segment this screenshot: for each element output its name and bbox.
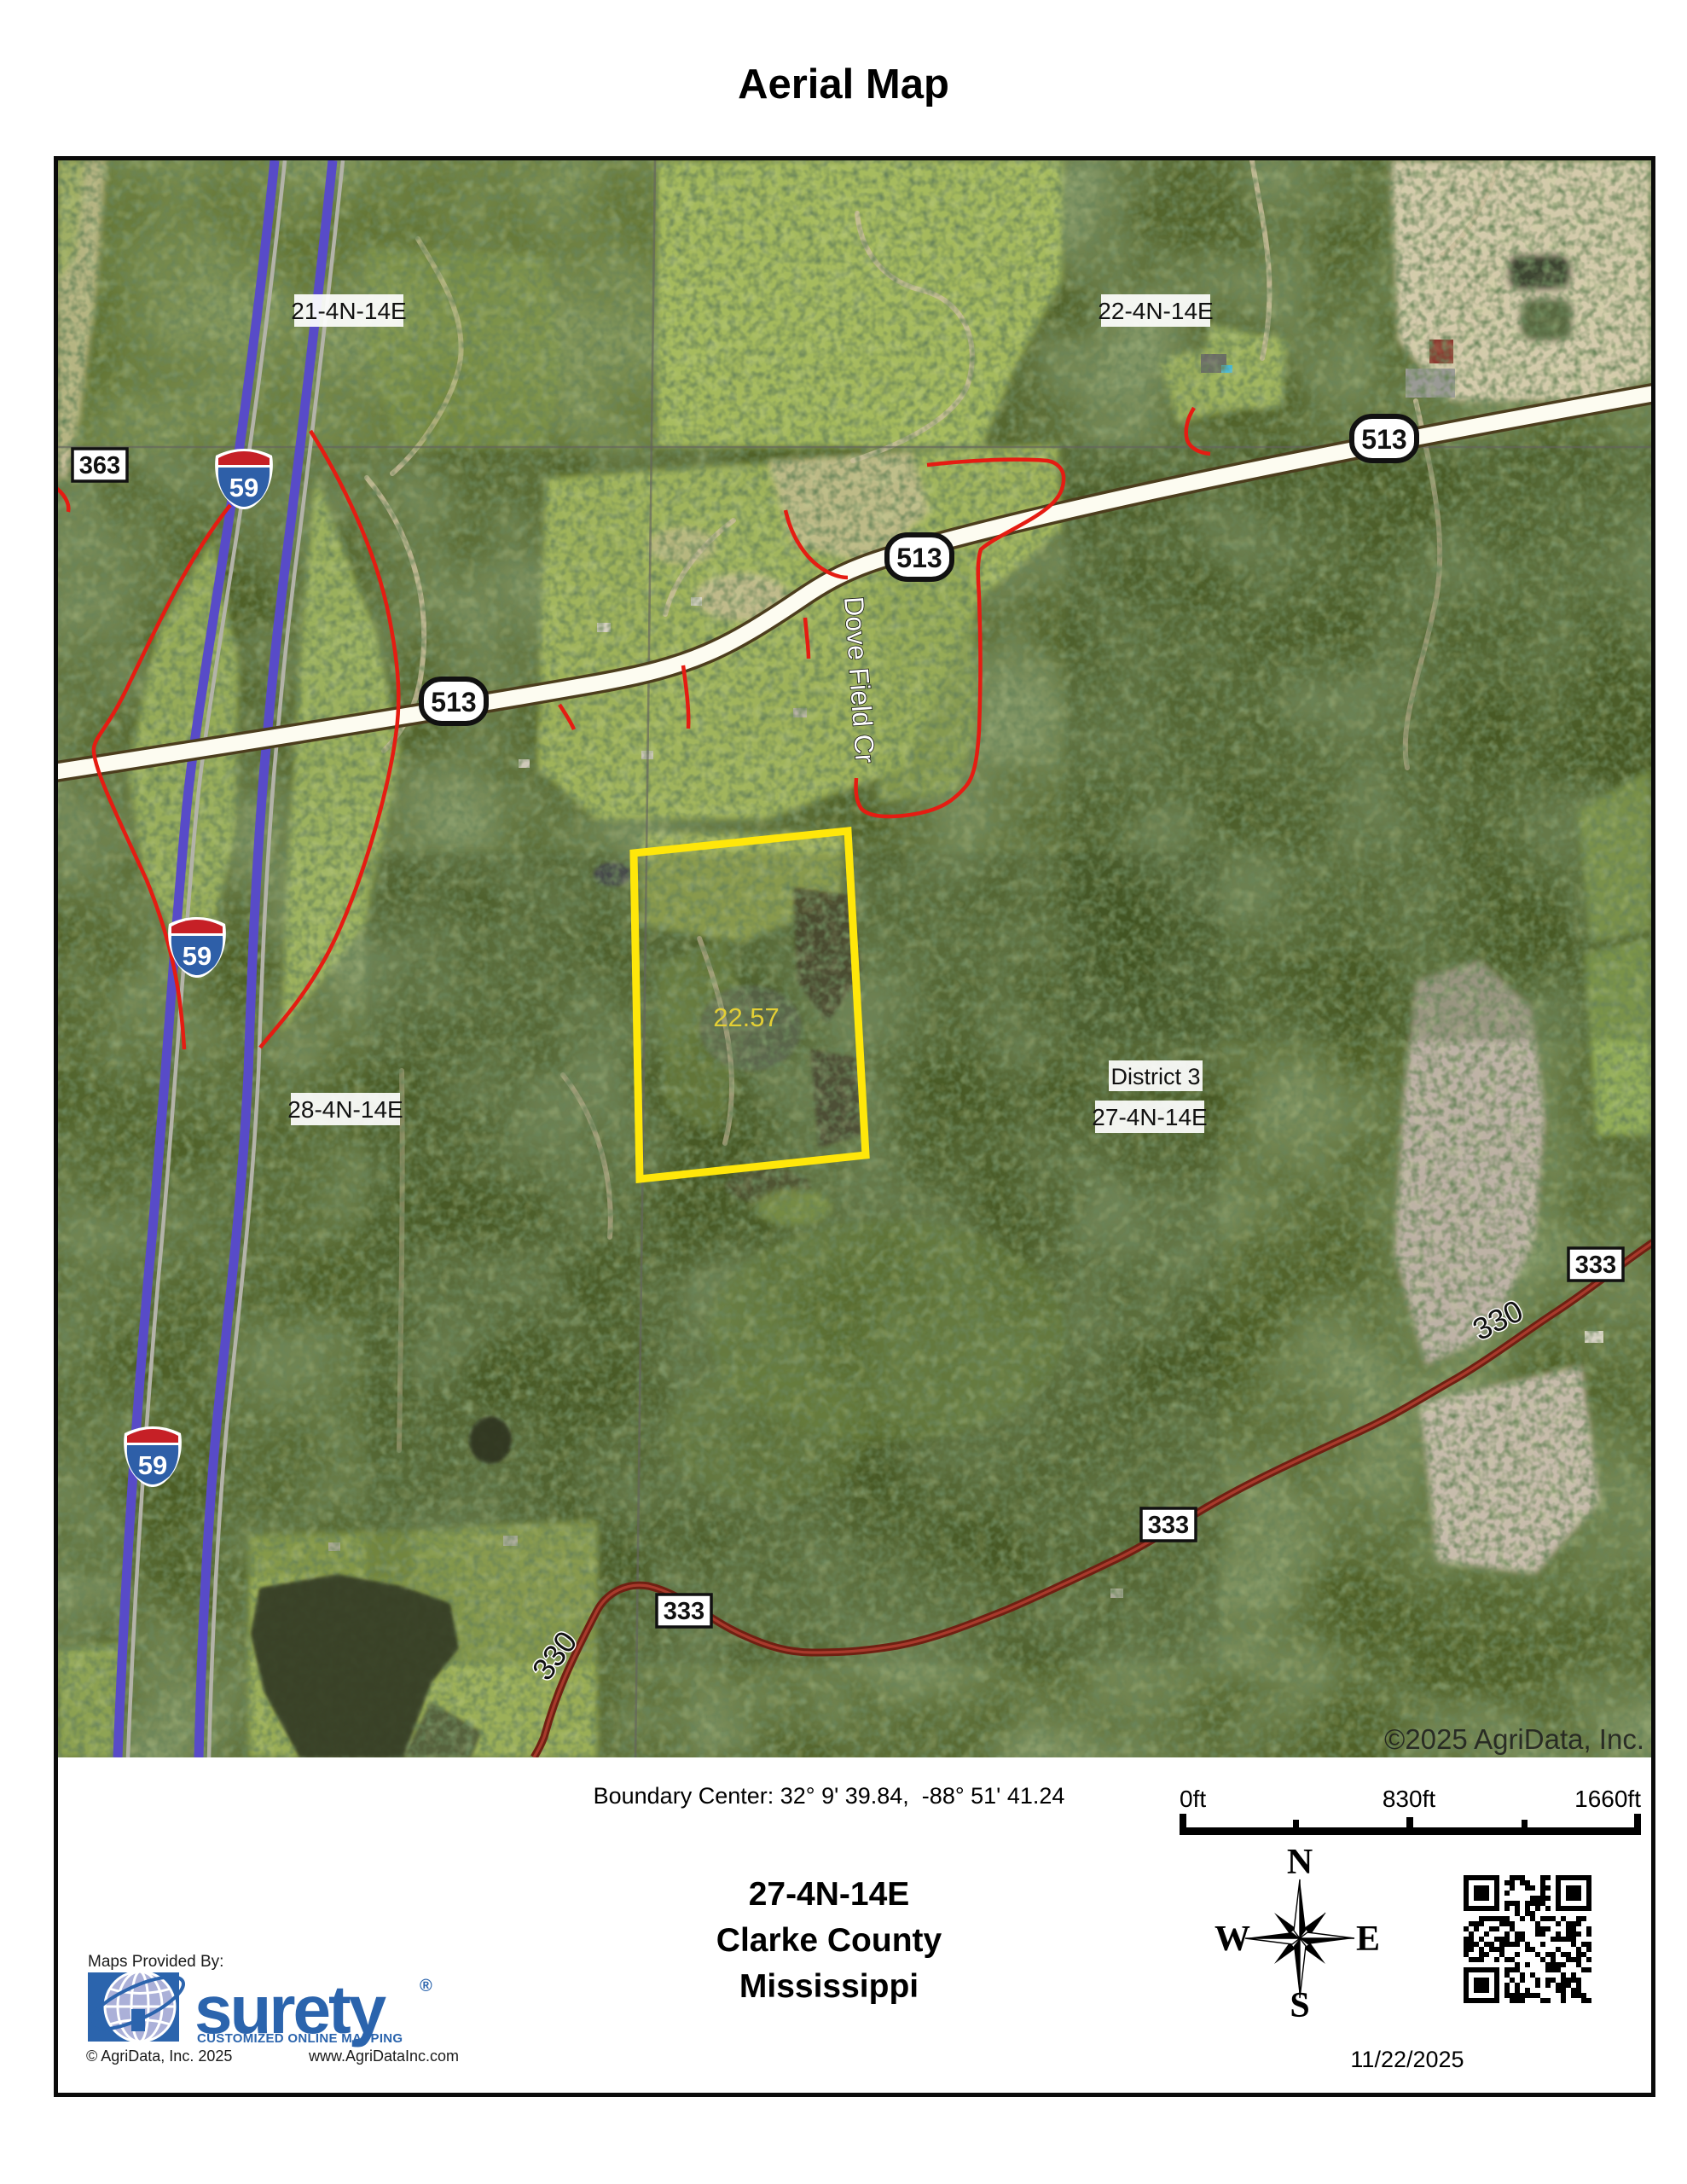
svg-text:59: 59 <box>138 1450 167 1480</box>
svg-text:333: 333 <box>1575 1252 1616 1279</box>
svg-text:363: 363 <box>79 452 120 479</box>
svg-text:22.57: 22.57 <box>713 1002 780 1032</box>
svg-text:513: 513 <box>896 543 942 573</box>
svg-text:333: 333 <box>1148 1512 1189 1539</box>
svg-text:©2025 AgriData, Inc.: ©2025 AgriData, Inc. <box>1384 1723 1644 1755</box>
svg-text:E: E <box>1356 1920 1380 1959</box>
svg-text:District 3: District 3 <box>1110 1064 1200 1089</box>
svg-text:®: ® <box>420 1977 432 1995</box>
svg-text:59: 59 <box>183 941 212 971</box>
svg-text:513: 513 <box>1361 424 1406 455</box>
svg-text:59: 59 <box>229 473 258 502</box>
svg-text:N: N <box>1287 1843 1313 1882</box>
svg-text:21-4N-14E: 21-4N-14E <box>291 298 406 324</box>
svg-text:28-4N-14E: 28-4N-14E <box>287 1096 403 1123</box>
svg-text:S: S <box>1290 1986 1309 2025</box>
svg-text:22-4N-14E: 22-4N-14E <box>1098 298 1213 324</box>
svg-text:W: W <box>1215 1920 1250 1959</box>
svg-text:333: 333 <box>664 1598 704 1625</box>
svg-text:513: 513 <box>431 687 476 717</box>
svg-text:CUSTOMIZED ONLINE MAPPING: CUSTOMIZED ONLINE MAPPING <box>197 2031 403 2046</box>
svg-text:27-4N-14E: 27-4N-14E <box>1092 1104 1207 1130</box>
